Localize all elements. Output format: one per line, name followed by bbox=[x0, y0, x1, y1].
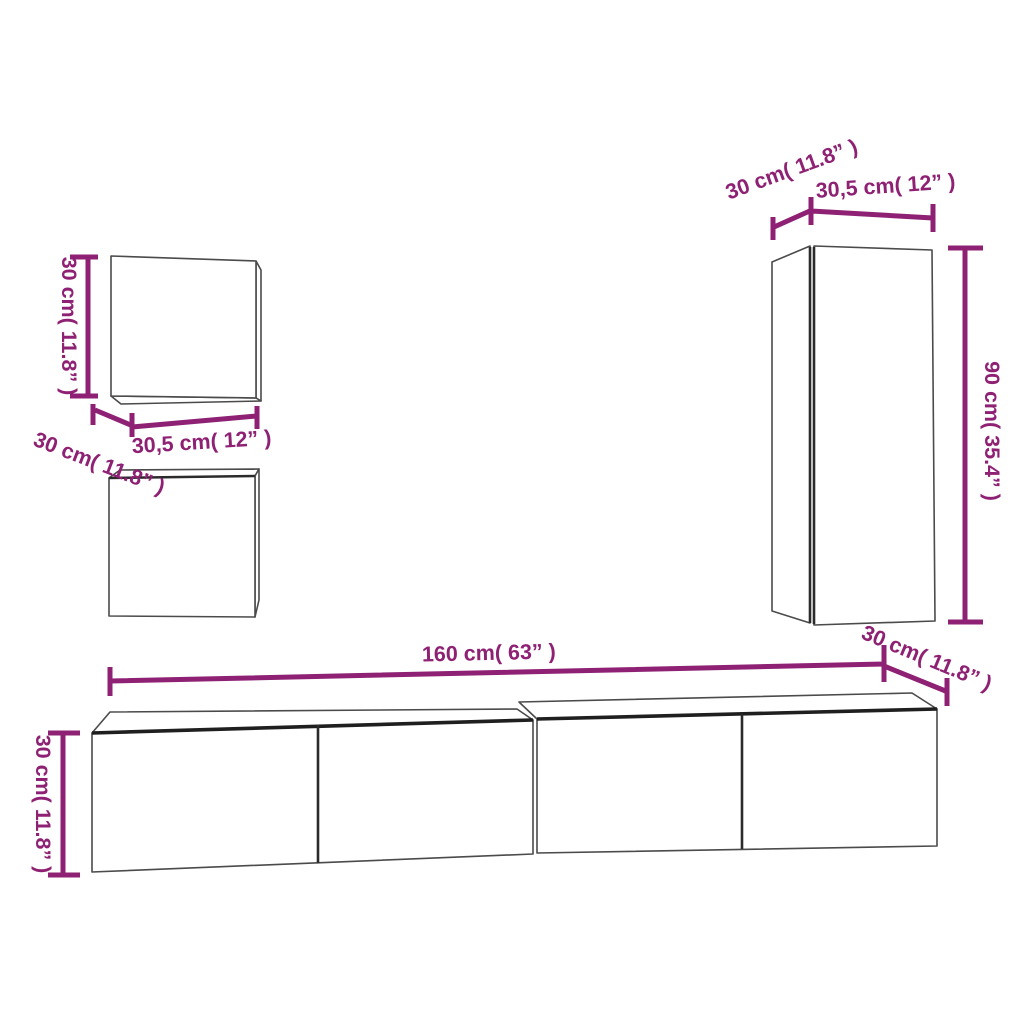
label-tall-cabinet-height: 90 cm( 35.4” ) bbox=[980, 361, 1004, 501]
front-face bbox=[814, 246, 935, 625]
label-small-cabinet-height: 30 cm( 11.8” ) bbox=[57, 257, 81, 396]
label-tall-cabinet-width: 30,5 cm( 12” ) bbox=[815, 169, 956, 203]
tv-cabinet-left bbox=[92, 709, 533, 872]
tv-cabinet-right bbox=[519, 693, 937, 853]
dim-tv-stand-width: 160 cm( 63” ) bbox=[110, 639, 884, 696]
wall-cabinet-small-1 bbox=[111, 256, 261, 404]
dim-small-cabinet-height: 30 cm( 11.8” ) bbox=[57, 257, 98, 396]
dim-tall-cabinet-depth-width: 30 cm( 11.8” ) 30,5 cm( 12” ) bbox=[722, 134, 956, 240]
dim-tv-stand-height: 30 cm( 11.8” ) bbox=[31, 733, 80, 875]
front-face bbox=[109, 476, 255, 617]
diagram-canvas: 30 cm( 11.8” ) 30 cm( 11.8” ) 30,5 cm( 1… bbox=[0, 0, 1024, 1024]
front-face bbox=[111, 256, 256, 398]
dim-tall-cabinet-height: 90 cm( 35.4” ) bbox=[948, 248, 1004, 622]
front-face bbox=[537, 709, 937, 853]
dim-line bbox=[948, 248, 983, 622]
label-small-cabinet-width: 30,5 cm( 12” ) bbox=[131, 426, 272, 458]
wall-cabinet-tall bbox=[772, 246, 935, 625]
front-face bbox=[92, 720, 533, 872]
tv-stand bbox=[92, 693, 937, 872]
left-side-face bbox=[772, 246, 810, 623]
furniture-dimension-diagram: 30 cm( 11.8” ) 30 cm( 11.8” ) 30,5 cm( 1… bbox=[0, 0, 1024, 1024]
door-gap-line bbox=[810, 247, 814, 624]
label-tv-stand-width: 160 cm( 63” ) bbox=[422, 639, 556, 666]
label-tv-stand-height: 30 cm( 11.8” ) bbox=[31, 735, 55, 874]
wall-cabinet-small-2 bbox=[109, 469, 259, 617]
dim-line bbox=[773, 197, 933, 240]
